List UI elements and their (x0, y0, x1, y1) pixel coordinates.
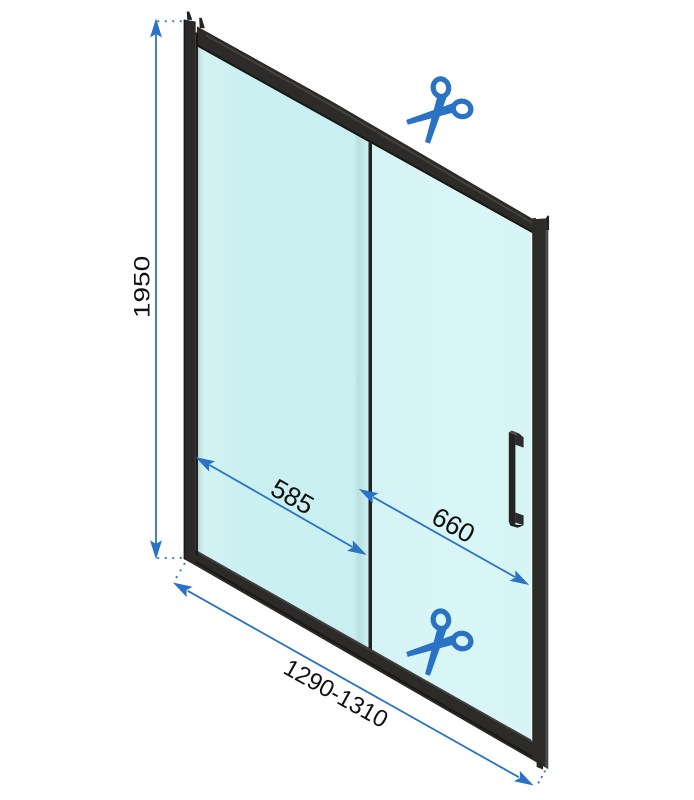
svg-text:1950: 1950 (130, 256, 154, 318)
